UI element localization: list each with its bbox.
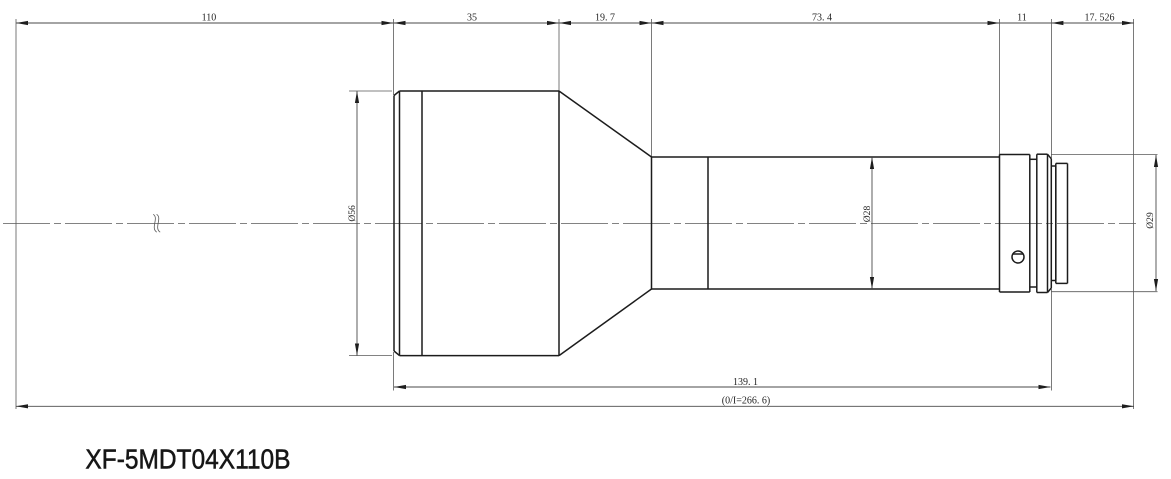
svg-text:(0/I=266. 6): (0/I=266. 6) (722, 396, 770, 407)
svg-text:19. 7: 19. 7 (595, 12, 615, 23)
svg-text:Ø29: Ø29 (1145, 212, 1156, 229)
svg-text:Ø56: Ø56 (347, 205, 358, 222)
svg-text:73. 4: 73. 4 (812, 12, 832, 23)
svg-text:110: 110 (202, 12, 217, 23)
svg-text:11: 11 (1017, 12, 1027, 23)
svg-text:Ø28: Ø28 (862, 206, 873, 223)
svg-text:XF-5MDT04X110B: XF-5MDT04X110B (85, 443, 290, 475)
svg-text:139. 1: 139. 1 (733, 377, 758, 388)
svg-text:17. 526: 17. 526 (1085, 12, 1115, 23)
svg-text:35: 35 (467, 12, 477, 23)
